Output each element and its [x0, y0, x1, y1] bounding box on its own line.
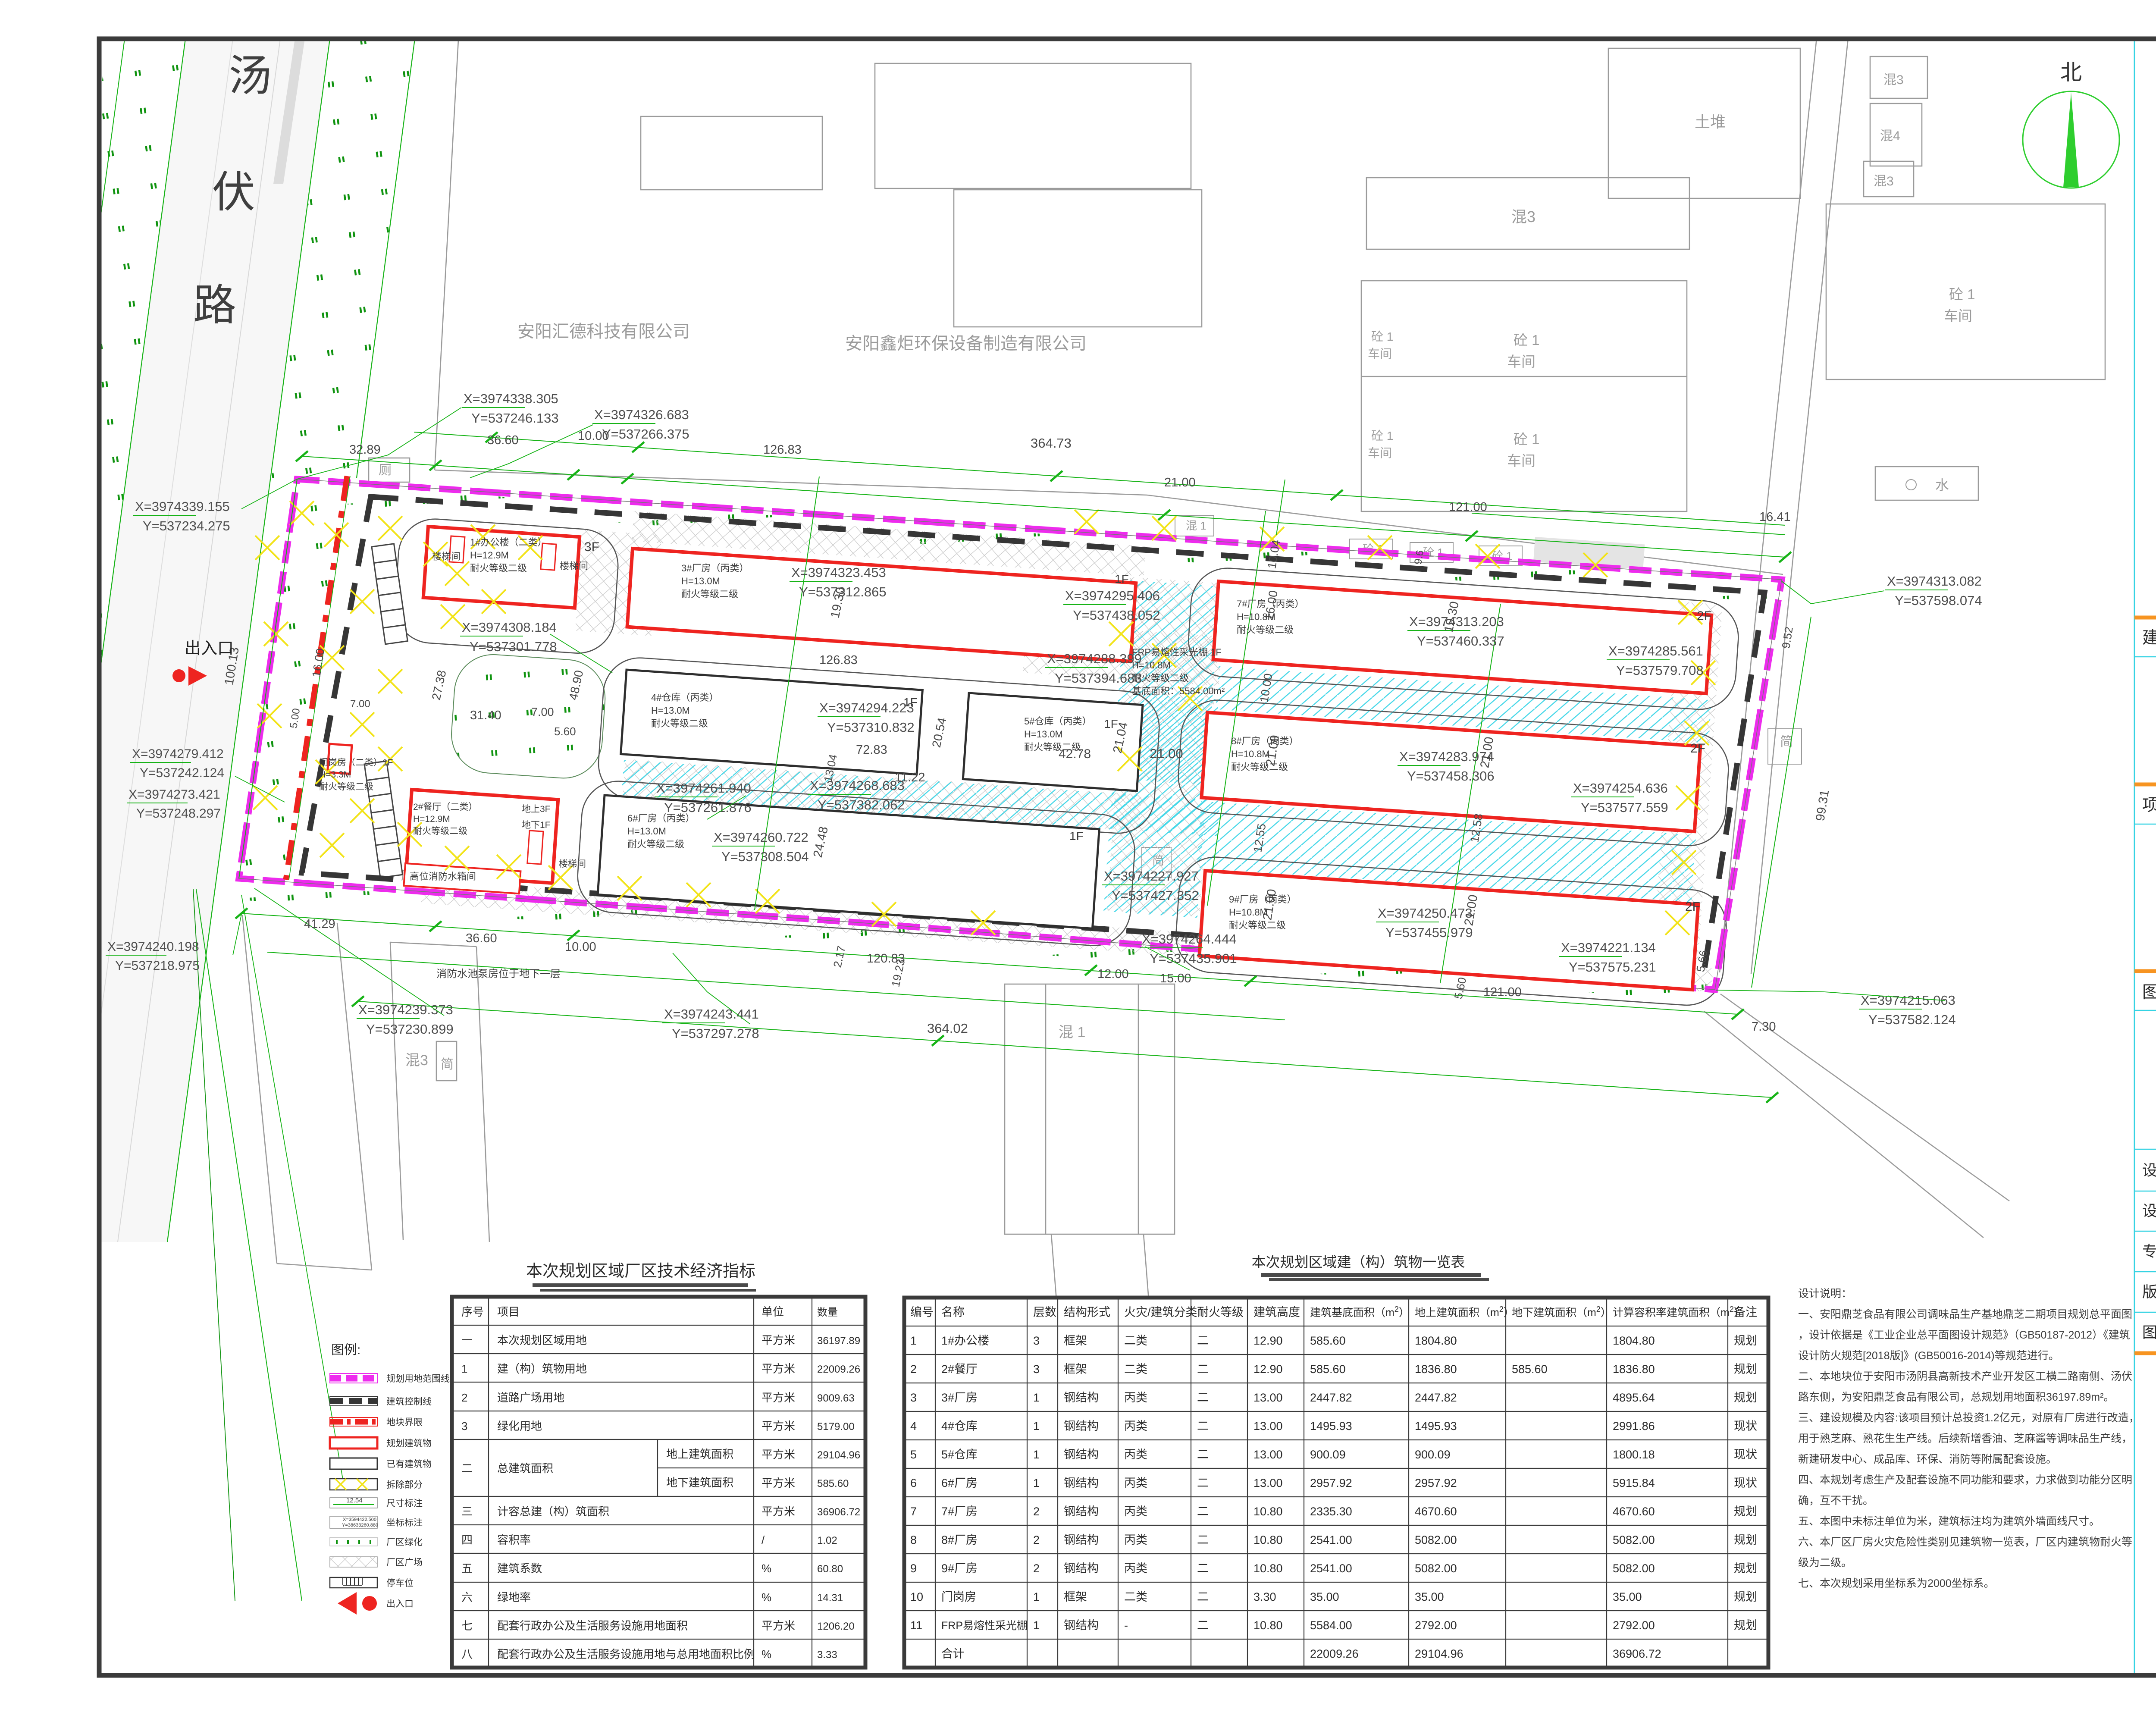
- svg-text:10.00: 10.00: [578, 429, 609, 443]
- svg-text:确，互不干扰。: 确，互不干扰。: [1798, 1495, 1874, 1507]
- svg-text:耐火等级二级: 耐火等级二级: [627, 839, 684, 850]
- svg-text:钢结构: 钢结构: [1064, 1448, 1099, 1461]
- svg-text:21.00: 21.00: [1164, 476, 1196, 489]
- svg-text:1495.93: 1495.93: [1310, 1420, 1352, 1433]
- svg-text:结构形式: 结构形式: [1064, 1306, 1110, 1319]
- svg-text:1206.20: 1206.20: [817, 1621, 855, 1632]
- svg-text:北: 北: [2060, 60, 2082, 85]
- svg-text:5915.84: 5915.84: [1613, 1477, 1655, 1489]
- svg-text:耐火等级二级: 耐火等级二级: [1231, 762, 1288, 772]
- svg-text:H=10.8M: H=10.8M: [1231, 749, 1270, 759]
- svg-text:5584.00: 5584.00: [1310, 1619, 1352, 1632]
- svg-text:二类: 二类: [1124, 1590, 1147, 1603]
- svg-text:耐火等级二级: 耐火等级二级: [319, 782, 373, 792]
- svg-text:60.80: 60.80: [817, 1563, 843, 1575]
- svg-text:4670.60: 4670.60: [1415, 1505, 1457, 1518]
- svg-text:2: 2: [910, 1363, 917, 1376]
- svg-text:安阳汇德科技有限公司: 安阳汇德科技有限公司: [517, 322, 690, 341]
- svg-text:Y=537427.352: Y=537427.352: [1112, 888, 1199, 903]
- svg-text:2792.00: 2792.00: [1415, 1619, 1457, 1632]
- svg-text:本次规划区域厂区技术经济指标: 本次规划区域厂区技术经济指标: [526, 1262, 755, 1280]
- svg-text:本次规划区域建（构）筑物一览表: 本次规划区域建（构）筑物一览表: [1252, 1254, 1465, 1270]
- svg-text:36.60: 36.60: [487, 433, 519, 447]
- svg-text:三、建设规模及内容:该项目预计总投资1.2亿元，对原有厂房进: 三、建设规模及内容:该项目预计总投资1.2亿元，对原有厂房进行改造，: [1798, 1412, 2140, 1424]
- svg-text:Y=537246.133: Y=537246.133: [471, 411, 559, 426]
- svg-text:车间: 车间: [1507, 453, 1536, 469]
- svg-text:3#厂房（丙类）: 3#厂房（丙类）: [681, 563, 749, 574]
- svg-text:5082.00: 5082.00: [1415, 1562, 1457, 1575]
- svg-text:9: 9: [910, 1562, 917, 1575]
- svg-text:基底面积：5584.00m²: 基底面积：5584.00m²: [1132, 686, 1225, 696]
- svg-text:2: 2: [1033, 1562, 1040, 1575]
- svg-text:2F: 2F: [1685, 900, 1700, 914]
- svg-text:规划: 规划: [1734, 1391, 1757, 1404]
- svg-text:设计防火规范[2018版]》(GB50016-2014)等规: 设计防火规范[2018版]》(GB50016-2014)等规范进行。: [1798, 1350, 2059, 1362]
- svg-text:项目名称: 项目名称: [2142, 796, 2156, 815]
- svg-text:厂区绿化: 厂区绿化: [386, 1537, 423, 1547]
- svg-text:二: 二: [1197, 1391, 1209, 1404]
- svg-text:计算容积率建筑面积（m2）: 计算容积率建筑面积（m2）: [1613, 1305, 1745, 1319]
- svg-text:Y=537579.708: Y=537579.708: [1616, 663, 1704, 678]
- svg-text:坐标标注: 坐标标注: [386, 1518, 423, 1528]
- svg-text:X=3974339.155: X=3974339.155: [135, 499, 230, 514]
- svg-text:项目: 项目: [497, 1305, 520, 1318]
- svg-text:二: 二: [1197, 1448, 1209, 1461]
- svg-text:Y=537382.062: Y=537382.062: [818, 797, 905, 812]
- svg-text:容积率: 容积率: [497, 1533, 531, 1546]
- svg-text:5082.00: 5082.00: [1415, 1533, 1457, 1546]
- svg-text:X=3974264.444: X=3974264.444: [1142, 931, 1237, 947]
- svg-text:Y=537460.337: Y=537460.337: [1417, 633, 1504, 649]
- svg-text:规划用地范围线: 规划用地范围线: [386, 1374, 450, 1384]
- svg-text:9.6: 9.6: [1412, 549, 1426, 565]
- svg-text:22009.26: 22009.26: [817, 1364, 860, 1375]
- svg-text:二类: 二类: [1124, 1334, 1147, 1347]
- svg-text:钢结构: 钢结构: [1064, 1391, 1099, 1404]
- svg-text:水: 水: [1935, 477, 1949, 493]
- svg-text:29104.96: 29104.96: [1415, 1647, 1463, 1660]
- svg-text:平方米: 平方米: [761, 1505, 795, 1518]
- svg-text:X=3974273.421: X=3974273.421: [128, 787, 220, 802]
- svg-text:H=10.8M: H=10.8M: [1229, 907, 1268, 918]
- svg-text:H=10.8M: H=10.8M: [1237, 611, 1275, 622]
- svg-text:2F: 2F: [1697, 609, 1712, 623]
- svg-text:13.00: 13.00: [1253, 1391, 1283, 1404]
- svg-text:Y=537575.231: Y=537575.231: [1569, 959, 1656, 975]
- svg-text:钢结构: 钢结构: [1064, 1533, 1099, 1546]
- svg-text:六: 六: [461, 1591, 473, 1604]
- svg-text:10.80: 10.80: [1253, 1619, 1283, 1632]
- svg-text:配套行政办公及生活服务设施用地面积: 配套行政办公及生活服务设施用地面积: [497, 1619, 688, 1632]
- svg-text:混4: 混4: [1880, 129, 1900, 143]
- svg-text:车间: 车间: [1944, 308, 1972, 324]
- svg-text:10.80: 10.80: [1253, 1562, 1283, 1575]
- svg-text:耐火等级二级: 耐火等级二级: [1132, 673, 1189, 684]
- svg-text:36.60: 36.60: [466, 931, 497, 945]
- svg-text:数量: 数量: [817, 1307, 838, 1318]
- svg-text:混3: 混3: [1511, 208, 1536, 226]
- svg-text:路东侧，为安阳鼎芝食品有限公司，总规划用地面积36197.8: 路东侧，为安阳鼎芝食品有限公司，总规划用地面积36197.89m²。: [1798, 1391, 2114, 1403]
- svg-text:X=3974323.453: X=3974323.453: [791, 565, 886, 580]
- svg-text:2: 2: [461, 1391, 467, 1404]
- svg-text:消防水池泵房位于地下一层: 消防水池泵房位于地下一层: [436, 968, 561, 980]
- svg-text:现状: 现状: [1734, 1420, 1757, 1433]
- svg-text:3.30: 3.30: [1253, 1590, 1276, 1603]
- svg-text:X=3974338.305: X=3974338.305: [464, 391, 558, 406]
- svg-text:9009.63: 9009.63: [817, 1392, 855, 1404]
- svg-text:丙类: 丙类: [1124, 1477, 1147, 1489]
- svg-text:道路广场用地: 道路广场用地: [497, 1391, 564, 1404]
- svg-text:%: %: [761, 1562, 771, 1575]
- svg-text:2447.82: 2447.82: [1310, 1391, 1352, 1404]
- svg-text:规划: 规划: [1734, 1590, 1757, 1603]
- svg-text:11: 11: [910, 1619, 922, 1632]
- svg-text:规划: 规划: [1734, 1334, 1757, 1347]
- svg-text:二: 二: [1197, 1619, 1209, 1632]
- svg-text:绿化用地: 绿化用地: [497, 1420, 542, 1433]
- svg-text:七、本次规划采用坐标系为2000坐标系。: 七、本次规划采用坐标系为2000坐标系。: [1798, 1577, 1995, 1590]
- svg-text:585.60: 585.60: [1310, 1363, 1346, 1376]
- svg-text:混3: 混3: [1883, 73, 1904, 87]
- svg-text:地块界限: 地块界限: [386, 1417, 423, 1427]
- svg-text:1: 1: [1033, 1420, 1040, 1433]
- svg-text:5#仓库: 5#仓库: [941, 1448, 978, 1461]
- svg-text:2957.92: 2957.92: [1310, 1477, 1352, 1489]
- svg-text:图纸名称: 图纸名称: [2142, 983, 2156, 1002]
- svg-text:计容总建（构）筑面积: 计容总建（构）筑面积: [497, 1505, 609, 1518]
- svg-text:现状: 现状: [1734, 1477, 1757, 1489]
- svg-text:7#厂房（丙类）: 7#厂房（丙类）: [1237, 599, 1304, 609]
- svg-text:Y=537248.297: Y=537248.297: [136, 806, 221, 821]
- svg-text:序号: 序号: [461, 1305, 484, 1318]
- svg-text:4: 4: [910, 1420, 917, 1433]
- svg-text:2957.92: 2957.92: [1415, 1477, 1457, 1489]
- svg-text:Y=537435.901: Y=537435.901: [1150, 951, 1237, 966]
- svg-text:5082.00: 5082.00: [1613, 1562, 1655, 1575]
- svg-text:出入口: 出入口: [185, 640, 234, 658]
- svg-text:H=12.9M: H=12.9M: [470, 550, 509, 561]
- svg-text:Y=537301.778: Y=537301.778: [470, 639, 557, 654]
- svg-text:砼 1: 砼 1: [1371, 429, 1393, 442]
- svg-text:现状: 现状: [1734, 1448, 1757, 1461]
- svg-text:Y=537230.899: Y=537230.899: [366, 1022, 454, 1037]
- svg-text:厕: 厕: [379, 463, 392, 477]
- svg-text:/: /: [761, 1533, 765, 1546]
- svg-text:八: 八: [461, 1648, 473, 1661]
- svg-text:二: 二: [461, 1462, 473, 1475]
- svg-text:1F: 1F: [1069, 829, 1084, 843]
- svg-text:X=3974250.473: X=3974250.473: [1378, 906, 1473, 921]
- svg-text:1: 1: [1033, 1619, 1040, 1632]
- svg-text:364.02: 364.02: [927, 1021, 968, 1036]
- svg-text:H=13.0M: H=13.0M: [681, 576, 720, 586]
- svg-text:新建研发中心、成品库、环保、消防等附属配套设施。: 新建研发中心、成品库、环保、消防等附属配套设施。: [1798, 1453, 2057, 1465]
- svg-text:H=13.0M: H=13.0M: [1024, 729, 1063, 740]
- svg-text:585.60: 585.60: [817, 1478, 849, 1489]
- svg-text:X=3974313.082: X=3974313.082: [1887, 574, 1982, 589]
- svg-text:级为二级。: 级为二级。: [1798, 1557, 1852, 1569]
- svg-text:建筑控制线: 建筑控制线: [386, 1397, 432, 1407]
- svg-text:585.60: 585.60: [1512, 1363, 1548, 1376]
- svg-text:364.73: 364.73: [1031, 436, 1072, 451]
- svg-text:二: 二: [1197, 1562, 1209, 1575]
- svg-text:7: 7: [910, 1505, 917, 1518]
- svg-text:地上建筑面积: 地上建筑面积: [666, 1448, 733, 1461]
- svg-text:1F: 1F: [1115, 572, 1129, 586]
- svg-text:平方米: 平方米: [761, 1391, 795, 1404]
- svg-text:900.09: 900.09: [1310, 1448, 1346, 1461]
- svg-text:Y=537308.504: Y=537308.504: [721, 849, 809, 864]
- svg-text:耐火等级二级: 耐火等级二级: [681, 589, 738, 599]
- svg-text:585.60: 585.60: [1310, 1334, 1346, 1347]
- svg-text:Y=537438.052: Y=537438.052: [1073, 608, 1160, 623]
- svg-text:31.40: 31.40: [470, 709, 501, 722]
- svg-text:二、本地块位于安阳市汤阴县高新技术产业开发区工横二路南侧、汤: 二、本地块位于安阳市汤阴县高新技术产业开发区工横二路南侧、汤伏: [1798, 1370, 2132, 1383]
- svg-text:1804.80: 1804.80: [1415, 1334, 1457, 1347]
- svg-text:混3: 混3: [1874, 174, 1894, 188]
- svg-text:汤: 汤: [229, 52, 272, 100]
- svg-text:X=3594422.500: X=3594422.500: [343, 1517, 376, 1522]
- svg-text:楼梯间: 楼梯间: [559, 859, 586, 869]
- svg-text:砼 1: 砼 1: [1514, 431, 1540, 447]
- svg-text:绿地率: 绿地率: [497, 1591, 531, 1604]
- svg-text:8#厂房（丙类）: 8#厂房（丙类）: [1231, 736, 1298, 746]
- svg-text:平方米: 平方米: [761, 1334, 795, 1347]
- svg-text:12.90: 12.90: [1253, 1363, 1283, 1376]
- svg-text:名称: 名称: [941, 1306, 965, 1319]
- svg-text:丙类: 丙类: [1124, 1562, 1147, 1575]
- svg-text:规划建筑物: 规划建筑物: [386, 1439, 432, 1449]
- svg-text:框架: 框架: [1064, 1363, 1087, 1376]
- svg-text:1.02: 1.02: [817, 1535, 837, 1546]
- svg-text:伏: 伏: [212, 168, 255, 216]
- svg-text:35.00: 35.00: [1613, 1590, 1642, 1603]
- svg-text:二类: 二类: [1124, 1363, 1147, 1376]
- svg-text:5179.00: 5179.00: [817, 1421, 855, 1433]
- svg-text:Y=537297.278: Y=537297.278: [672, 1026, 759, 1041]
- svg-text:16.41: 16.41: [1759, 510, 1791, 524]
- svg-text:土堆: 土堆: [1695, 113, 1726, 131]
- svg-text:13.00: 13.00: [1253, 1448, 1283, 1461]
- svg-text:H=3.3M: H=3.3M: [319, 770, 351, 780]
- svg-text:Y=537458.306: Y=537458.306: [1407, 768, 1495, 784]
- svg-text:砼 1: 砼 1: [1371, 330, 1393, 343]
- svg-text:规划: 规划: [1734, 1619, 1757, 1632]
- svg-text:X=3974288.399: X=3974288.399: [1047, 651, 1142, 666]
- svg-text:图例:: 图例:: [331, 1343, 360, 1357]
- svg-text:7.00: 7.00: [350, 698, 370, 710]
- svg-text:平方米: 平方米: [761, 1362, 795, 1375]
- svg-text:设计阶段: 设计阶段: [2142, 1203, 2156, 1220]
- svg-text:图: 图: [2142, 1324, 2156, 1341]
- svg-text:2#餐厅（二类）: 2#餐厅（二类）: [413, 802, 477, 812]
- svg-text:丙类: 丙类: [1124, 1533, 1147, 1546]
- svg-text:建设单位: 建设单位: [2142, 629, 2156, 647]
- svg-text:2: 2: [1033, 1533, 1040, 1546]
- svg-text:%: %: [761, 1648, 771, 1661]
- svg-text:路: 路: [193, 281, 236, 329]
- svg-text:2: 2: [1033, 1505, 1040, 1518]
- svg-text:X=3974254.636: X=3974254.636: [1573, 781, 1668, 796]
- svg-text:Y=537582.124: Y=537582.124: [1868, 1012, 1956, 1027]
- svg-text:钢结构: 钢结构: [1064, 1477, 1099, 1489]
- svg-text:7.00: 7.00: [531, 705, 554, 718]
- svg-text:二: 二: [1197, 1505, 1209, 1518]
- svg-text:尺寸标注: 尺寸标注: [386, 1499, 423, 1508]
- svg-text:四: 四: [461, 1533, 473, 1546]
- svg-text:3: 3: [461, 1420, 467, 1433]
- svg-text:36906.72: 36906.72: [1613, 1647, 1661, 1660]
- svg-text:设计说明：: 设计说明：: [1798, 1288, 1852, 1300]
- svg-text:Y=38633260.880: Y=38633260.880: [342, 1523, 378, 1528]
- svg-text:Y=537394.683: Y=537394.683: [1055, 671, 1142, 686]
- svg-text:35.00: 35.00: [1415, 1590, 1444, 1603]
- svg-text:一、安阳鼎芝食品有限公司调味品生产基地鼎芝二期项目规划总平面: 一、安阳鼎芝食品有限公司调味品生产基地鼎芝二期项目规划总平面图: [1798, 1308, 2132, 1320]
- svg-text:126.83: 126.83: [763, 443, 802, 457]
- svg-text:门岗房（二类）1F: 门岗房（二类）1F: [319, 758, 393, 768]
- svg-text:X=3974279.412: X=3974279.412: [132, 747, 224, 761]
- svg-text:1495.93: 1495.93: [1415, 1420, 1457, 1433]
- svg-text:平方米: 平方米: [761, 1477, 795, 1489]
- svg-text:地下1F: 地下1F: [522, 820, 551, 830]
- svg-text:3: 3: [910, 1391, 917, 1404]
- svg-text:配套行政办公及生活服务设施用地与总用地面积比例: 配套行政办公及生活服务设施用地与总用地面积比例: [497, 1648, 755, 1661]
- svg-text:楼梯间: 楼梯间: [560, 561, 588, 571]
- svg-text:Y=537598.074: Y=537598.074: [1895, 593, 1982, 608]
- svg-text:9#厂房（丙类）: 9#厂房（丙类）: [1229, 894, 1296, 905]
- svg-text:1#办公楼（二类）: 1#办公楼（二类）: [470, 537, 547, 548]
- svg-text:1: 1: [461, 1362, 467, 1375]
- svg-text:砼 1: 砼 1: [1514, 332, 1540, 348]
- svg-text:10: 10: [910, 1590, 923, 1603]
- svg-text:X=3974221.134: X=3974221.134: [1561, 940, 1656, 955]
- svg-text:3.33: 3.33: [817, 1649, 837, 1661]
- svg-text:7.30: 7.30: [1752, 1020, 1776, 1034]
- svg-text:五、本图中未标注单位为米，建筑标注均为建筑外墙面线尺寸。: 五、本图中未标注单位为米，建筑标注均为建筑外墙面线尺寸。: [1798, 1515, 2100, 1527]
- svg-text:拆除部分: 拆除部分: [386, 1480, 423, 1490]
- svg-text:X=3974295.406: X=3974295.406: [1065, 588, 1160, 603]
- svg-text:砼 1: 砼 1: [1949, 286, 1975, 302]
- svg-text:5.60: 5.60: [554, 725, 576, 738]
- svg-text:13.00: 13.00: [1253, 1477, 1283, 1489]
- svg-text:规划: 规划: [1734, 1562, 1757, 1575]
- svg-text:21.00: 21.00: [1150, 746, 1183, 761]
- svg-text:1: 1: [1033, 1477, 1040, 1489]
- svg-text:耐火等级二级: 耐火等级二级: [1024, 742, 1081, 753]
- svg-text:12.54: 12.54: [346, 1497, 363, 1504]
- svg-text:H=13.0M: H=13.0M: [651, 705, 690, 716]
- svg-text:混3: 混3: [405, 1052, 428, 1069]
- svg-text:%: %: [761, 1591, 771, 1604]
- svg-text:X=3974240.198: X=3974240.198: [107, 940, 199, 954]
- svg-text:地上3F: 地上3F: [522, 804, 551, 814]
- svg-text:混 1: 混 1: [1059, 1024, 1085, 1041]
- svg-text:二: 二: [1197, 1590, 1209, 1603]
- svg-text:框架: 框架: [1064, 1334, 1087, 1347]
- svg-text:1: 1: [1033, 1590, 1040, 1603]
- svg-text:1804.80: 1804.80: [1613, 1334, 1655, 1347]
- svg-text:总建筑面积: 总建筑面积: [497, 1462, 553, 1475]
- svg-text:楼梯间: 楼梯间: [432, 551, 461, 562]
- svg-text:1: 1: [910, 1334, 917, 1347]
- svg-text:10.80: 10.80: [1253, 1505, 1283, 1518]
- svg-text:900.09: 900.09: [1415, 1448, 1451, 1461]
- svg-text:丙类: 丙类: [1124, 1448, 1147, 1461]
- svg-text:钢结构: 钢结构: [1064, 1562, 1099, 1575]
- svg-text:7#厂房: 7#厂房: [941, 1505, 978, 1518]
- svg-text:2991.86: 2991.86: [1613, 1420, 1655, 1433]
- svg-text:规划: 规划: [1734, 1533, 1757, 1546]
- svg-text:二: 二: [1197, 1420, 1209, 1433]
- svg-text:22009.26: 22009.26: [1310, 1647, 1359, 1660]
- svg-text:2541.00: 2541.00: [1310, 1562, 1352, 1575]
- svg-text:8: 8: [910, 1533, 917, 1546]
- svg-text:X=3974260.722: X=3974260.722: [714, 830, 808, 845]
- svg-text:出入口: 出入口: [386, 1599, 414, 1609]
- svg-text:钢结构: 钢结构: [1064, 1420, 1099, 1433]
- svg-text:2541.00: 2541.00: [1310, 1533, 1352, 1546]
- svg-text:X=3974227.927: X=3974227.927: [1104, 869, 1199, 884]
- svg-text:耐火等级: 耐火等级: [1197, 1306, 1244, 1319]
- svg-text:钢结构: 钢结构: [1064, 1619, 1099, 1632]
- svg-text:9#厂房: 9#厂房: [941, 1562, 978, 1575]
- svg-text:建（构）筑物用地: 建（构）筑物用地: [497, 1362, 587, 1375]
- svg-text:Y=537218.975: Y=537218.975: [115, 959, 200, 973]
- svg-text:126.83: 126.83: [819, 653, 858, 667]
- svg-text:耐火等级二级: 耐火等级二级: [470, 563, 527, 574]
- svg-text:15.00: 15.00: [1160, 972, 1191, 985]
- svg-text:三: 三: [461, 1505, 473, 1518]
- svg-text:X=3974239.373: X=3974239.373: [358, 1002, 453, 1017]
- svg-text:单位: 单位: [761, 1305, 784, 1318]
- svg-text:厂区广场: 厂区广场: [386, 1558, 423, 1568]
- svg-text:二: 二: [1197, 1363, 1209, 1376]
- svg-text:1836.80: 1836.80: [1415, 1363, 1457, 1376]
- svg-text:耐火等级二级: 耐火等级二级: [1229, 920, 1286, 931]
- svg-text:1: 1: [1033, 1448, 1040, 1461]
- svg-text:3: 3: [1033, 1334, 1040, 1347]
- svg-text:X=3974308.184: X=3974308.184: [462, 620, 557, 635]
- svg-text:2335.30: 2335.30: [1310, 1505, 1352, 1518]
- svg-text:2792.00: 2792.00: [1613, 1619, 1655, 1632]
- svg-text:Y=537234.275: Y=537234.275: [143, 518, 230, 533]
- svg-text:车间: 车间: [1368, 446, 1392, 460]
- svg-text:车间: 车间: [1368, 347, 1392, 361]
- svg-text:121.00: 121.00: [1449, 500, 1487, 514]
- svg-text:X=3974285.561: X=3974285.561: [1608, 643, 1703, 658]
- svg-text:41.29: 41.29: [304, 917, 335, 931]
- svg-text:Y=537577.559: Y=537577.559: [1581, 800, 1668, 815]
- svg-text:已有建筑物: 已有建筑物: [386, 1459, 432, 1469]
- svg-text:29104.96: 29104.96: [817, 1449, 860, 1461]
- svg-text:停车位: 停车位: [386, 1578, 414, 1588]
- svg-text:一: 一: [461, 1334, 473, 1347]
- svg-text:1800.18: 1800.18: [1613, 1448, 1655, 1461]
- svg-text:耐火等级二级: 耐火等级二级: [651, 718, 708, 729]
- svg-text:二: 二: [1197, 1533, 1209, 1546]
- svg-text:72.83: 72.83: [856, 743, 887, 757]
- svg-text:2F: 2F: [1690, 741, 1705, 756]
- svg-text:4895.64: 4895.64: [1613, 1391, 1655, 1404]
- svg-text:六、本厂区厂房火灾危险性类别见建筑物一览表，厂区内建筑物耐火: 六、本厂区厂房火灾危险性类别见建筑物一览表，厂区内建筑物耐火等: [1798, 1536, 2132, 1548]
- svg-text:8#厂房: 8#厂房: [941, 1533, 978, 1546]
- svg-text:平方米: 平方米: [761, 1448, 795, 1461]
- svg-text:丙类: 丙类: [1124, 1505, 1147, 1518]
- svg-text:13.00: 13.00: [1253, 1420, 1283, 1433]
- svg-text:FRP易熔性采光棚: FRP易熔性采光棚: [941, 1620, 1028, 1632]
- svg-text:门岗房: 门岗房: [941, 1590, 976, 1603]
- svg-text:四、本规划考虑生产及配套设施不同功能和要求，力求做到功能分区: 四、本规划考虑生产及配套设施不同功能和要求，力求做到功能分区明: [1798, 1474, 2132, 1486]
